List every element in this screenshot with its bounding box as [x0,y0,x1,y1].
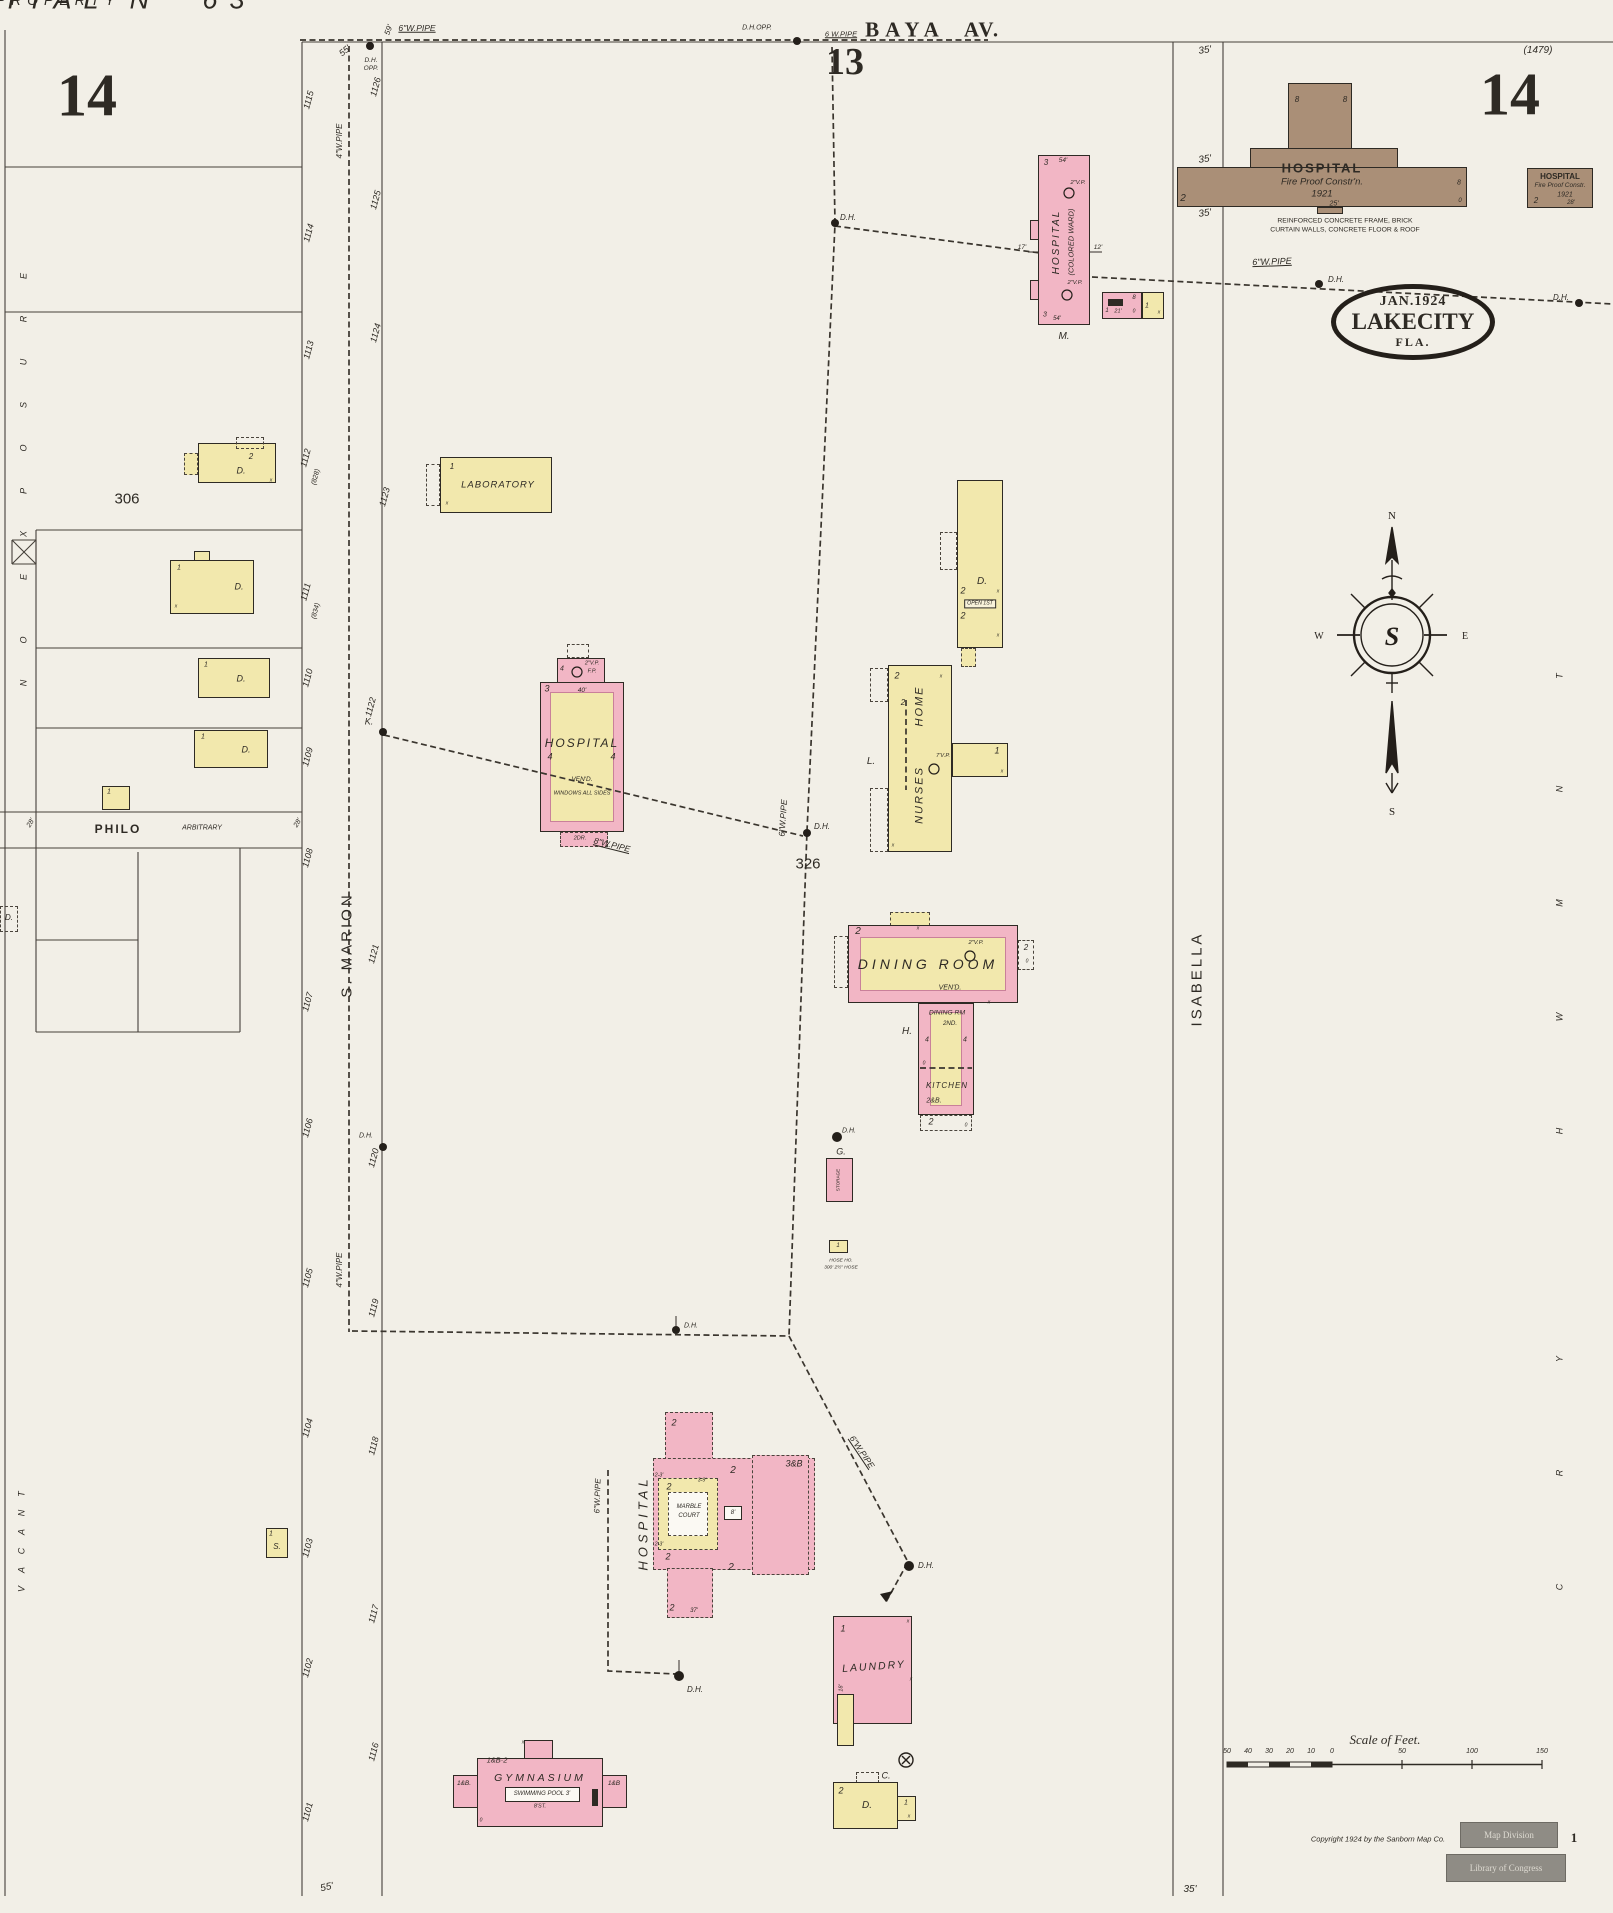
map-label: 2 [671,1419,676,1428]
map-label: 2 [669,1604,674,1613]
map-label: Fire Proof Constr'n. [1281,177,1363,187]
map-label: x [175,605,178,610]
map-label: 21' [1114,309,1121,315]
building-house-3 [198,658,270,698]
map-label: 1 [1105,308,1108,314]
stamp-page-number: 1 [1571,1830,1578,1846]
building-dining-room [890,912,930,926]
scale-numbers: 5040302010050100150 [1220,1748,1550,1758]
building-hospital-colored-ward [1030,220,1039,240]
map-label: 35' [1198,154,1212,166]
sheet-number-right: 14 [1480,61,1540,130]
map-label: 1&B·2 [487,1756,508,1764]
map-label: 0 [1458,198,1461,204]
scale-minor-number: 10 [1307,1748,1315,1755]
map-label: D. [237,675,246,684]
map-label: 326 [795,857,820,872]
map-label: DINING RM [929,1011,965,1018]
map-label: STORAGE [837,1169,842,1191]
map-label: 1921 [1557,192,1573,199]
map-label: 25' [1329,201,1338,208]
map-label: E [20,273,29,279]
map-label: 2-3' [655,1473,664,1478]
map-label: 0 [1133,310,1136,315]
page-subtitle: FEDERAL PROPERTY [0,0,120,8]
copyright-note: Copyright 1924 by the Sanborn Map Co. [1311,1835,1445,1844]
map-label: 0 [480,1819,483,1824]
map-label: x [940,675,943,680]
map-label: 8 [1132,295,1135,301]
scale-minor-number: 0 [1330,1748,1334,1755]
map-label: 306 [114,492,139,507]
map-label: 40' [578,688,586,695]
map-label: 7'V.P. [936,754,950,760]
scale-major-number: 100 [1466,1748,1478,1755]
map-label: D.H. [684,1323,698,1330]
map-label: 28' [1567,200,1575,206]
building-laboratory [426,464,440,506]
corner-reference: (1479) [1524,46,1553,56]
map-label: T [18,1491,27,1497]
map-label: AV. [964,20,1000,41]
map-label: 2ND. [943,1021,957,1027]
map-label: W [1556,1013,1565,1022]
map-label: 1 [904,1800,908,1807]
map-label: HOSPITAL [637,1475,650,1570]
building-central-hospital [550,692,614,822]
map-label: 2DR. [574,836,587,842]
building-d-building [961,648,976,667]
map-label: C [1556,1584,1565,1591]
map-label: 2 [730,1466,736,1476]
map-label: 2 [666,1483,671,1492]
map-label: x [988,1001,991,1006]
map-label: 6"W.PIPE [593,1478,602,1513]
map-label: CURTAIN WALLS, CONCRETE FLOOR & ROOF [1270,228,1419,235]
map-label: 2"V.P. [1067,281,1082,287]
map-label: x [522,1741,525,1746]
compass-south-label: S [1389,806,1395,818]
map-label: 1&B [608,1781,620,1788]
map-label: 35' [1198,208,1212,220]
map-label: PHILO [95,823,142,835]
map-label: 37' [690,1608,698,1614]
map-label: D. [235,583,244,592]
map-label: HOSE HO. [829,1260,852,1265]
badge-date: JAN.1924 [1380,294,1447,310]
sheet-number-left: 14 [57,62,117,131]
scale-minor-number: 20 [1286,1748,1294,1755]
building-gymnasium [592,1789,598,1806]
map-label: D.H. [842,1128,856,1135]
map-label: O [20,444,29,451]
map-label: x [1001,770,1004,775]
map-label: D. [5,914,13,922]
scale-major-number: 50 [1398,1748,1406,1755]
map-label: 2&B. [926,1098,941,1105]
map-label: 2"V.P. [1070,181,1085,187]
map-label: 2 [1180,194,1186,204]
map-label: N [20,680,29,687]
map-label: H [1556,1128,1565,1135]
map-label: K. [365,718,374,727]
map-label: 6"W.PIPE [398,24,435,33]
map-label: x [910,1678,913,1683]
map-label: D. [242,746,251,755]
map-label: HOSPITAL [1540,173,1580,181]
map-label: WINDOWS ALL SIDES [554,791,611,797]
map-label: 1 [177,565,181,572]
map-label: G. [836,1148,846,1157]
map-label: V [18,1586,27,1592]
building-house-1 [236,437,264,449]
map-label: 35' [1198,45,1212,57]
map-label: D. [237,467,246,476]
map-label: E [20,574,29,580]
stamp-library-of-congress: Library of Congress [1446,1854,1566,1882]
map-label: 4"W.PIPE [336,124,344,159]
map-label: 3 [544,685,549,694]
map-label: 1 [840,1625,845,1634]
map-label: 2 [960,612,965,621]
map-label: 1 [836,1243,839,1249]
map-label: x [917,927,920,932]
map-label: 1 [269,1531,273,1538]
map-label: S. MARION [340,892,355,997]
building-dining-room [834,936,848,988]
street-and-lot-lines [0,0,1613,1913]
map-label: 2 [249,453,253,461]
map-label: C [18,1548,27,1555]
adjacent-sheet-number: 13 [826,40,864,84]
map-label: 2 [960,587,965,596]
map-label: 4 [925,1037,929,1044]
building-hospital-fireproof-1921 [1317,207,1343,214]
map-label: 4 [560,666,564,673]
map-label: 1 [1145,303,1149,310]
building-nurses-home [870,788,888,852]
map-label: 1 [107,789,111,796]
map-label: OPEN 1ST [964,599,996,608]
map-label: M. [1058,332,1069,342]
map-label: R [1556,1470,1565,1477]
building-house-1 [184,453,198,475]
map-label: H. [902,1027,912,1037]
map-label: 2 [728,1563,734,1573]
map-label: 2"V.P. [968,941,983,947]
map-label: x [270,479,273,484]
map-label: D. [862,1801,872,1811]
map-label: Y [1556,1356,1565,1362]
stamp-map-division: Map Division [1460,1822,1558,1848]
map-label: 12' [1094,245,1102,252]
map-label: 2 [928,1118,933,1127]
map-label: 8 [1295,96,1299,104]
map-label: x [907,1620,910,1625]
map-label: R [20,316,29,323]
map-label: REINFORCED CONCRETE FRAME, BRICK [1277,219,1412,226]
map-label: 54' [1053,316,1061,322]
scale-major-number: 150 [1536,1748,1548,1755]
map-label: 4 [963,1037,967,1044]
map-label: 8 [1343,96,1347,104]
map-label: A [18,1529,27,1535]
map-label: 35' [1183,1885,1196,1895]
map-label: VEN'D. [571,777,592,784]
map-label: M [1556,899,1565,907]
map-label: x [997,634,1000,639]
map-label: 6 W.PIPE [825,30,857,38]
map-label: 1921 [1311,189,1332,199]
map-label: 2 [1024,944,1028,952]
map-label: ISABELLA [1190,932,1205,1027]
map-label: LABORATORY [461,480,535,490]
scale-ruler [1220,1759,1550,1771]
map-label: D.H. [365,58,378,65]
map-label: OPP. [364,66,379,73]
map-label: U [20,359,29,366]
map-label: x [892,844,895,849]
scale-minor-number: 50 [1223,1748,1231,1755]
map-label: P [20,488,29,494]
building-house-2 [194,551,210,561]
map-label: HOSPITAL [1052,210,1062,275]
map-label: A [18,1567,27,1573]
map-label: 2 [1534,197,1538,205]
map-label: C. [882,1772,891,1781]
building-d-building [940,532,957,570]
badge-city: LAKECITY [1352,310,1475,334]
map-label: D.H. [918,1562,934,1570]
map-label: 54' [1059,158,1067,165]
map-label: L. [867,757,875,767]
map-label: 4"W.PIPE [336,1253,344,1288]
building-nurses-home [952,743,1008,777]
map-label: KITCHEN [926,1082,968,1090]
map-label: 0 [1026,960,1029,965]
map-label: GYMNASIUM [494,1773,586,1784]
map-label: N [18,1510,27,1517]
map-label: 8' [731,1510,735,1516]
building-central-hospital [567,644,589,658]
map-label: Fire Proof Constr. [1534,183,1585,190]
map-label: x [997,590,1000,595]
map-label: 3 [1043,312,1047,319]
compass-north-label: N [1388,510,1396,522]
svg-text:S: S [1385,622,1399,651]
map-label: S [20,402,29,408]
map-label: 3 [1044,159,1048,167]
scale-title: Scale of Feet. [1220,1732,1550,1748]
compass-west-label: W [1314,631,1324,642]
map-label: 2 [901,699,905,707]
map-label: 2 [855,927,861,937]
scale-minor-number: 40 [1244,1748,1252,1755]
map-label: HOSPITAL [1282,162,1363,175]
map-label: HOME [915,686,926,727]
building-bottom-hospital [752,1455,809,1575]
map-label: D.H. [1553,294,1569,302]
map-label: 0 [923,1062,926,1067]
map-label: D.H. [687,1686,703,1694]
map-label: (COLORED WARD) [1067,209,1075,276]
map-label: 2 [894,672,899,681]
map-label: O [20,636,29,643]
map-label: 1 [994,747,999,756]
map-label: D. [977,577,987,587]
building-house-1 [198,443,276,483]
building-hospital-fireproof-1921 [1288,83,1352,149]
scale-minor-number: 30 [1265,1748,1273,1755]
map-label: D.H.OPP. [742,25,772,32]
map-label: 1 [204,662,208,669]
building-laundry [837,1694,854,1746]
map-label: 2 [665,1553,670,1562]
map-label: ARBITRARY [182,825,222,832]
map-label: D.H. [840,214,856,222]
city-date-badge: JAN.1924 LAKECITY FLA. [1331,284,1495,360]
map-label: 2 [838,1787,843,1796]
map-label: F.P. [588,669,597,675]
map-label: N [1556,786,1565,793]
map-label: HOSPITAL [545,737,619,749]
building-gymnasium [524,1740,553,1759]
map-label: 3-9' [698,1478,707,1483]
map-label: D.H. [359,1133,373,1140]
compass-east-label: E [1462,631,1468,642]
map-label: NURSES [915,766,926,824]
map-label: BAYA [865,20,945,41]
map-label: SWIMMING POOL 3' [514,1791,570,1797]
map-label: MARBLE [677,1504,702,1510]
scale-bar: Scale of Feet. 5040302010050100150 [1220,1732,1550,1776]
map-label: 8'ST. [534,1804,546,1810]
building-d-building [957,480,1003,648]
map-label: 18' [839,1684,845,1691]
map-label: 0 [965,1124,968,1129]
map-label: 1 [450,463,454,471]
map-label: 6"W.PIPE [1252,257,1292,267]
building-house-4 [194,730,268,768]
compass-rose-icon: S N W E S [1307,505,1477,820]
building-nurses-home [870,668,888,702]
map-label: 3&B [785,1460,802,1469]
badge-state: FLA. [1396,335,1431,350]
sanborn-map-sheet: 14 14 13 (1479) U. S. HOSPITAL Nº 63 FED… [0,0,1613,1913]
building-small-pair-building [1108,299,1123,306]
map-label: COURT [678,1513,699,1519]
map-label: X [20,531,29,537]
map-label: 2"V.P. [585,661,599,667]
map-label: 8 [1457,180,1461,187]
map-label: 4 [610,753,615,762]
map-label: x [446,502,449,507]
map-label: S. [273,1543,281,1551]
map-label: x [1158,311,1161,316]
building-hospital-colored-ward [1030,280,1039,300]
map-label: 1&B. [457,1781,471,1788]
map-label: 4 [547,753,552,762]
map-label: x [908,1815,911,1820]
map-label: T [1556,673,1565,679]
map-label: 1 [201,734,205,741]
map-label: 17' [1018,245,1026,252]
map-label: DINING ROOM [858,957,998,971]
map-label: VEN'D. [939,985,962,992]
map-label: 300' 2½" HOSE [824,1267,858,1272]
map-label: D.H. [814,823,830,831]
map-label: D.H. [1328,276,1344,284]
map-label: 2-3' [655,1542,664,1547]
